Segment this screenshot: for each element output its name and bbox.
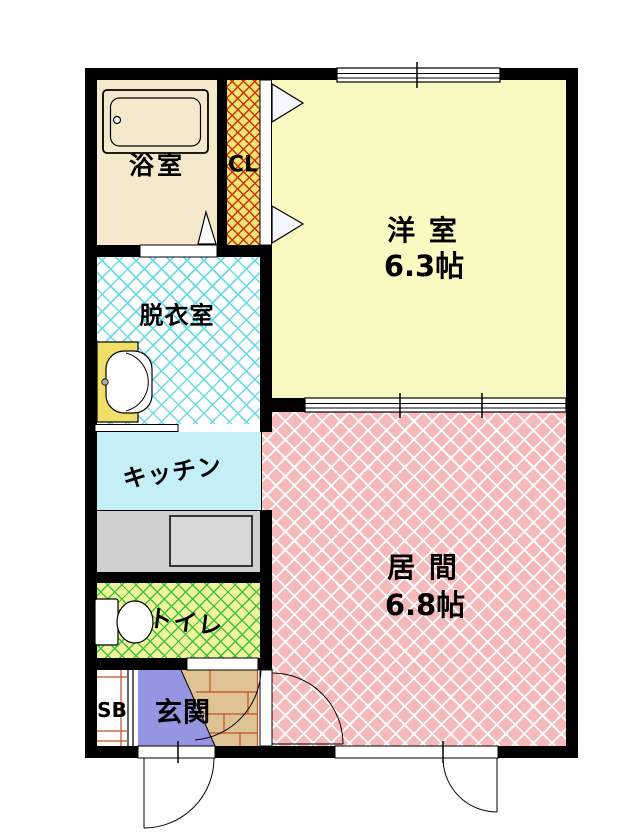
washbasin-icon xyxy=(97,342,152,422)
label-living-room: 居 間 xyxy=(387,546,459,586)
sliding-partition xyxy=(305,393,566,418)
closet-bifold-doors xyxy=(272,84,303,243)
hall-door-opening xyxy=(260,670,272,746)
entrance-door-opening xyxy=(138,746,215,758)
dressing-sliding-door xyxy=(95,425,178,432)
kitchen-counter-sink xyxy=(170,516,252,566)
closet-opening xyxy=(260,80,272,245)
bath-door-opening xyxy=(140,245,217,257)
living-door-opening xyxy=(335,746,498,758)
label-shoe-box: SB xyxy=(97,698,127,722)
label-bathroom: 浴室 xyxy=(129,146,185,182)
bath-door-icon xyxy=(198,212,216,244)
label-dressing-room: 脱衣室 xyxy=(140,296,215,331)
hall-door-swing xyxy=(272,673,343,744)
openings xyxy=(138,80,498,758)
label-living-room-size: 6.8帖 xyxy=(385,582,465,624)
bathtub-icon xyxy=(103,90,208,153)
label-western-room-size: 6.3帖 xyxy=(384,243,464,285)
toilet-icon xyxy=(95,599,153,645)
window-top xyxy=(337,62,500,88)
label-entrance: 玄関 xyxy=(155,691,211,730)
floor-plan: 浴室 CL 洋 室 6.3帖 脱衣室 キッチン トイレ SB 玄関 居 間 6.… xyxy=(0,0,644,840)
toilet-door-opening xyxy=(187,658,258,670)
label-closet: CL xyxy=(228,153,258,178)
